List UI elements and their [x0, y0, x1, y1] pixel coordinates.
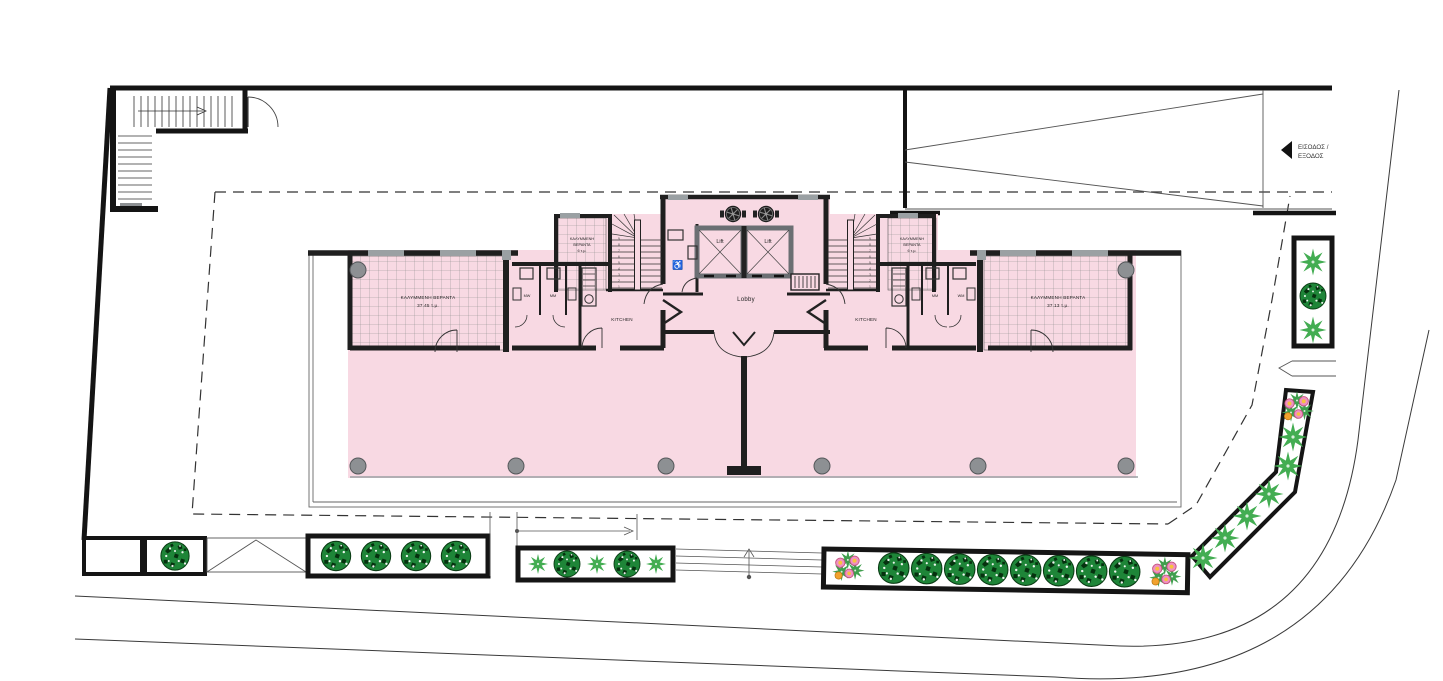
planter-four-trees	[308, 536, 488, 576]
entrance-exit-label-1: ΕΙΣΟΔΟΣ /	[1298, 144, 1329, 151]
kitchen-right-label: KITCHEN	[855, 317, 877, 322]
small-veranda-left-l1: ΚΑΛΥΜΜΕΝΗ	[570, 237, 594, 241]
wc-label: MW	[524, 294, 531, 298]
entrance-exit-label-2: ΕΞΟΔΟΣ	[1298, 153, 1324, 160]
entrance-steps	[676, 549, 822, 579]
small-veranda-right-l1: ΚΑΛΥΜΜΕΝΗ	[900, 237, 924, 241]
stair-step-number: 5	[869, 261, 871, 265]
bottom-strip	[84, 512, 1188, 593]
stair-step-number: 1	[618, 285, 620, 289]
veranda-left-area: 37.45 τ.μ.	[417, 303, 439, 308]
stair-step-number: 4	[869, 267, 871, 271]
planter-single-tree	[145, 538, 205, 574]
lift-left-label: Lift	[716, 239, 724, 245]
side-walk-arrow	[1279, 361, 1336, 376]
stair-step-number: 2	[869, 279, 871, 283]
covered-veranda-left: ΚΑΛΥΜΜΕΝΗ ΒΕΡΑΝΤΑ 37.45 τ.μ.	[352, 256, 504, 350]
planter-right-trees	[823, 549, 1188, 593]
lobby-label: Lobby	[737, 297, 755, 303]
stair-step-number: 8	[869, 243, 871, 247]
planter-angled-strip	[1192, 390, 1313, 577]
lift-right-label: Lift	[764, 239, 772, 245]
covered-veranda-right: ΚΑΛΥΜΜΕΝΗ ΒΕΡΑΝΤΑ 37.13 τ.μ.	[984, 256, 1132, 350]
stair-step-number: 6	[618, 255, 620, 259]
stair-step-number: 7	[869, 249, 871, 253]
parking-drive-area	[890, 90, 1336, 213]
planter-right-top	[1294, 238, 1332, 346]
veranda-left-label: ΚΑΛΥΜΜΕΝΗ ΒΕΡΑΝΤΑ	[401, 295, 456, 300]
stair-step-number: 9	[869, 237, 871, 241]
wc-label: WM	[958, 294, 965, 298]
small-veranda-left-l3: 6 τ.μ.	[578, 249, 587, 253]
utility-box	[84, 538, 142, 574]
stair-step-number: 2	[618, 279, 620, 283]
stair-step-number: 9	[618, 237, 620, 241]
entrance-arrow-icon	[1281, 141, 1292, 159]
kitchen-left-label: KITCHEN	[611, 317, 633, 322]
wheelchair-icon: ♿	[672, 259, 683, 270]
right-side-strip	[1189, 238, 1337, 577]
small-veranda-left-l2: ΒΕΡΑΝΤΑ	[573, 243, 591, 247]
stair-step-number: 3	[618, 273, 620, 277]
electrical-panel	[791, 274, 819, 290]
site-plan-canvas: ΕΙΣΟΔΟΣ / ΕΞΟΔΟΣ ΚΑΛΥΜΜΕΝΗ ΒΕΡΑΝΤΑ 3	[0, 0, 1443, 681]
stair-step-number: 4	[618, 267, 620, 271]
veranda-right-label: ΚΑΛΥΜΜΕΝΗ ΒΕΡΑΝΤΑ	[1031, 295, 1086, 300]
veranda-right-area: 37.13 τ.μ.	[1047, 303, 1069, 308]
small-veranda-right-l2: ΒΕΡΑΝΤΑ	[903, 243, 921, 247]
stair-step-number: 5	[618, 261, 620, 265]
stair-step-number: 3	[869, 273, 871, 277]
small-veranda-right-l3: 6 τ.μ.	[908, 249, 917, 253]
planter-center-shrubs	[518, 548, 673, 580]
center-divider-wall	[741, 356, 747, 468]
floor-plan-drawing: ΕΙΣΟΔΟΣ / ΕΞΟΔΟΣ ΚΑΛΥΜΜΕΝΗ ΒΕΡΑΝΤΑ 3	[0, 0, 1443, 681]
entrance-exit-sign: ΕΙΣΟΔΟΣ / ΕΞΟΔΟΣ	[1281, 141, 1329, 160]
stair-step-number: 1	[869, 285, 871, 289]
wc-label: MM	[932, 294, 938, 298]
stair-step-number: 8	[618, 243, 620, 247]
wc-label: MM	[550, 294, 556, 298]
stair-step-number: 6	[869, 255, 871, 259]
driveway-ramp	[207, 538, 306, 572]
external-stair-topleft	[110, 88, 278, 212]
stair-step-number: 7	[618, 249, 620, 253]
